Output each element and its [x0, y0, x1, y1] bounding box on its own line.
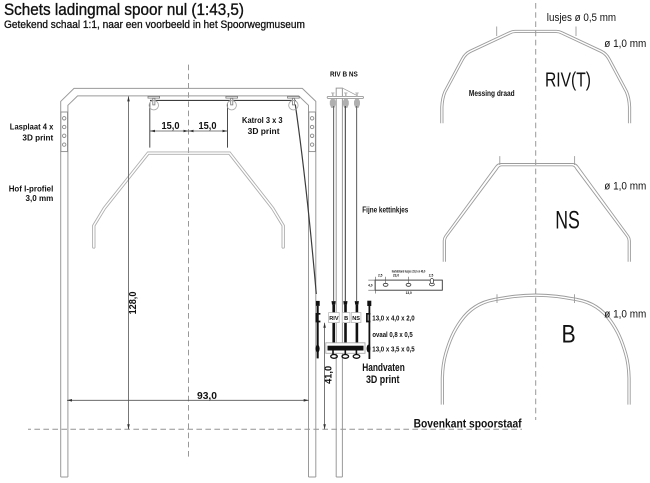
svg-text:93,0: 93,0 [197, 390, 217, 402]
svg-text:15,0: 15,0 [162, 120, 180, 132]
svg-text:3,0 mm: 3,0 mm [26, 193, 54, 203]
svg-text:RIV B NS: RIV B NS [330, 72, 358, 79]
svg-text:2,5: 2,5 [429, 273, 434, 277]
svg-text:3D print: 3D print [248, 126, 280, 136]
svg-text:B: B [344, 316, 348, 322]
svg-text:Messing draad: Messing draad [469, 89, 515, 98]
svg-text:Lasplaat 4 x: Lasplaat 4 x [10, 121, 54, 131]
svg-text:ø 1,0 mm: ø 1,0 mm [604, 308, 646, 320]
svg-text:RIV(T): RIV(T) [545, 69, 591, 91]
svg-text:RIV: RIV [329, 316, 339, 322]
svg-text:Bovenkant spoorstaaf: Bovenkant spoorstaaf [414, 418, 522, 430]
svg-text:B: B [562, 320, 576, 348]
svg-text:Getekend schaal 1:1, naar een: Getekend schaal 1:1, naar een voorbeeld … [4, 19, 305, 31]
svg-text:NS: NS [555, 206, 580, 234]
svg-text:Hof I-profiel: Hof I-profiel [9, 183, 54, 193]
svg-text:41,0: 41,0 [322, 366, 334, 384]
svg-text:4,0: 4,0 [368, 284, 373, 288]
svg-text:ø 1,0 mm: ø 1,0 mm [604, 180, 646, 192]
svg-text:23,0: 23,0 [393, 273, 399, 277]
svg-text:NS: NS [352, 316, 360, 322]
svg-text:13,0: 13,0 [406, 291, 412, 295]
svg-text:ovaal 0,8 x 0,5: ovaal 0,8 x 0,5 [372, 330, 412, 339]
svg-text:13,0 x 4,0 x 2,0: 13,0 x 4,0 x 2,0 [372, 314, 414, 323]
svg-text:3D print: 3D print [366, 374, 400, 386]
svg-text:15,0: 15,0 [199, 120, 217, 132]
svg-text:2,5: 2,5 [378, 273, 383, 277]
svg-text:13,0 x 3,5 x 0,5: 13,0 x 3,5 x 0,5 [372, 344, 414, 353]
svg-text:ø 1,0 mm: ø 1,0 mm [604, 38, 646, 50]
svg-text:128,0: 128,0 [127, 291, 139, 314]
svg-text:3D print: 3D print [22, 132, 53, 142]
svg-text:lusjes ø 0,5 mm: lusjes ø 0,5 mm [547, 12, 616, 24]
svg-text:Katrol 3 x 3: Katrol 3 x 3 [242, 115, 283, 125]
svg-text:Fijne kettinkjes: Fijne kettinkjes [362, 206, 408, 215]
svg-text:Schets ladingmal spoor nul (1:: Schets ladingmal spoor nul (1:43,5) [4, 1, 244, 19]
svg-text:Handvaten: Handvaten [362, 362, 405, 374]
